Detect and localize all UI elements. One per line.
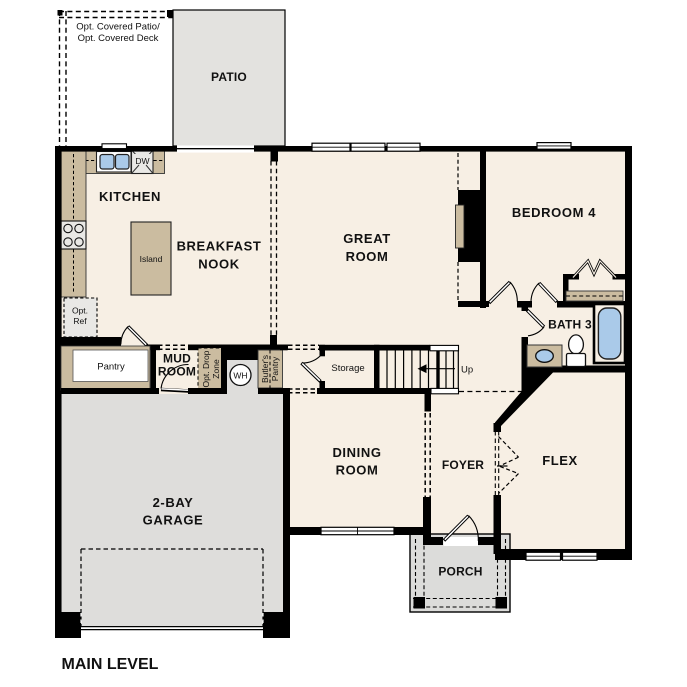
- svg-text:GARAGE: GARAGE: [143, 513, 204, 528]
- svg-text:2-BAY: 2-BAY: [153, 495, 194, 510]
- svg-text:KITCHEN: KITCHEN: [99, 189, 161, 204]
- svg-text:GREAT: GREAT: [343, 231, 391, 246]
- svg-text:BATH 3: BATH 3: [548, 318, 592, 332]
- svg-text:BEDROOM 4: BEDROOM 4: [512, 205, 596, 220]
- svg-text:BREAKFAST: BREAKFAST: [177, 239, 262, 254]
- svg-text:FLEX: FLEX: [542, 453, 578, 468]
- svg-text:Storage: Storage: [331, 363, 364, 374]
- svg-text:Zone: Zone: [211, 359, 221, 379]
- svg-text:MUD: MUD: [163, 352, 191, 366]
- svg-text:MAIN LEVEL: MAIN LEVEL: [62, 656, 159, 673]
- svg-text:Up: Up: [461, 365, 473, 376]
- svg-text:Pantry: Pantry: [97, 362, 125, 373]
- svg-text:PORCH: PORCH: [438, 565, 482, 579]
- svg-text:DINING: DINING: [332, 445, 381, 460]
- svg-text:Opt.: Opt.: [72, 306, 88, 316]
- svg-text:Pantry: Pantry: [270, 356, 280, 381]
- svg-text:ROOM: ROOM: [346, 249, 389, 264]
- svg-text:NOOK: NOOK: [198, 257, 239, 272]
- svg-text:Island: Island: [140, 254, 163, 264]
- svg-text:Opt. Drop: Opt. Drop: [201, 350, 211, 387]
- svg-text:Ref: Ref: [73, 316, 87, 326]
- svg-text:DW: DW: [135, 156, 149, 166]
- svg-text:Opt. Covered Patio/: Opt. Covered Patio/: [76, 22, 160, 33]
- svg-text:WH: WH: [233, 371, 247, 381]
- svg-text:PATIO: PATIO: [211, 70, 247, 84]
- svg-text:Butler's: Butler's: [260, 355, 270, 383]
- svg-text:Opt. Covered Deck: Opt. Covered Deck: [78, 33, 159, 44]
- svg-text:FOYER: FOYER: [442, 458, 484, 472]
- svg-text:ROOM: ROOM: [336, 463, 379, 478]
